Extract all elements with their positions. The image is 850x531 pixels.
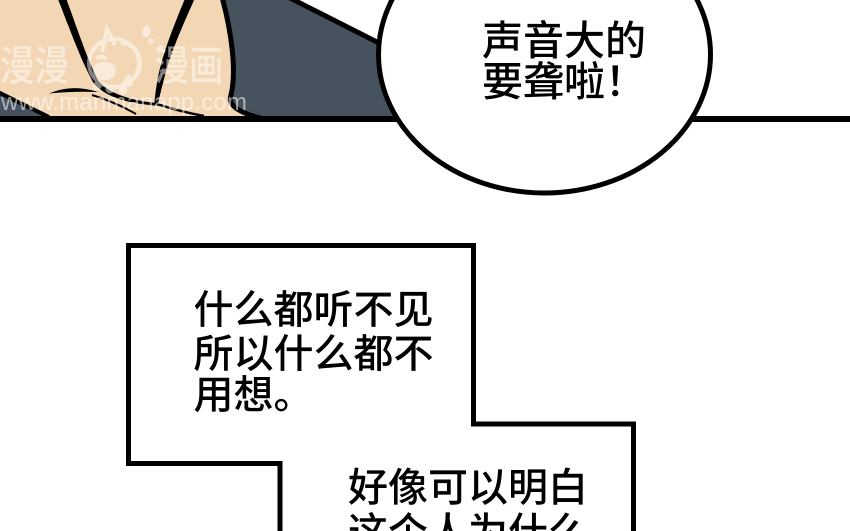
svg-text:www.manmanapp.com: www.manmanapp.com: [0, 89, 247, 116]
